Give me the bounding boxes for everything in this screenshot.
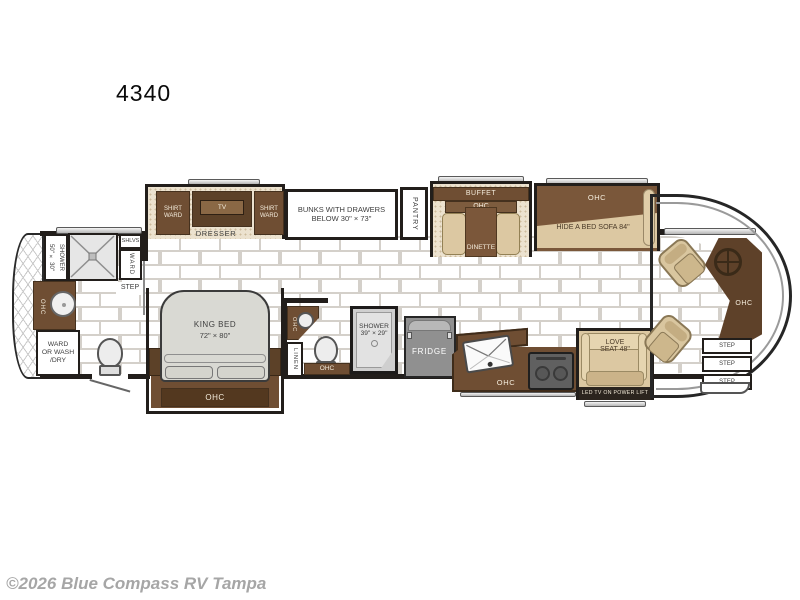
love-seat-slide: LOVE SEAT 48" LED TV ON POWER LIFT [576,328,654,400]
love-seat-line2: SEAT 48" [600,346,630,353]
king-bed-slide: KING BED 72" × 80" OHC [146,288,284,414]
mid-shower-size: 39" × 29" [361,330,388,337]
mid-shower: SHOWER 39" × 29" [350,306,398,374]
fridge-hinge-left [407,332,412,339]
tv-screen: TV [200,200,244,215]
cooktop-icon [528,352,574,390]
step-1-label: STEP [719,343,735,350]
step-1: STEP [702,338,752,354]
ward-wash-line3: /DRY [50,357,66,365]
mid-shower-label: SHOWER [359,323,389,330]
linen-cabinet: LINEN [286,342,303,377]
tv-cabinet: TV [192,191,252,227]
pocket-door-line [143,261,145,315]
entry-steps: STEP STEP STEP [702,338,748,384]
ward-label: WARD [127,253,134,275]
fridge: FRIDGE [404,316,456,378]
front-ohc-label: OHC [726,298,762,310]
fridge-label: FRIDGE [406,346,453,358]
pantry-label: PANTRY [410,197,418,231]
king-bed-label: KING BED [194,320,236,329]
wardrobe-box: WARD [119,249,142,280]
shower-drain-icon [371,340,378,347]
sofa-slide: OHC HIDE A BED SOFA 84" [534,183,660,251]
dinette-slide: BUFFET OHC DINETTE [430,181,532,257]
rear-vanity-ohc-label: OHC [35,286,45,328]
dresser-label: DRESSER [166,229,266,239]
bath-step-label: STEP [116,282,144,295]
wall-segment [282,298,328,303]
pantry-box: PANTRY [400,187,428,240]
hide-a-bed-sofa-label: HIDE A BED SOFA 84" [539,222,647,232]
rear-bath-shower-label: 50" × 30" SHOWER [44,234,68,281]
wall-segment [142,233,148,261]
floor-plan: SHIRT WARD TV SHIRT WARD DRESSER BUNKS W… [0,0,800,600]
door-swing-line [90,379,131,392]
rear-vanity-sink-icon [50,291,76,317]
mattress-seam [164,354,266,363]
linen-label: LINEN [291,348,298,370]
rear-vanity: OHC [33,281,76,330]
bunks-label-line2: BELOW 30" × 73" [312,215,372,224]
ward-or-washdry-box: WARD OR WASH /DRY [36,330,80,376]
watermark: ©2026 Blue Compass RV Tampa [6,574,266,594]
entry-platform [700,382,750,394]
rear-toilet-icon [96,338,124,378]
step-2-label: STEP [719,361,735,368]
ward-wash-line2: OR WASH [42,349,74,357]
bed-cushion-right [217,366,265,379]
love-seat-line1: LOVE [606,339,625,346]
step-2: STEP [702,356,752,372]
mid-shower-pan: SHOWER 39" × 29" [356,312,392,368]
ward-wash-line1: WARD [48,341,69,349]
king-bed-ohc: OHC [161,388,269,407]
love-seat-cushion [586,371,644,386]
dinette-bench-right [496,213,520,255]
bed-cushion-left [165,366,213,379]
buffet-cabinet: BUFFET [433,187,529,201]
rear-shower-pan [68,233,118,281]
steering-wheel-icon [714,248,742,276]
shlvs-label: SHLVS [122,238,140,244]
window-strip [460,392,576,397]
bunks-box: BUNKS WITH DRAWERS BELOW 30" × 73" [285,189,398,240]
shower-pan-x-icon [70,235,115,278]
rear-shower-size: 50" × 30" [48,244,54,271]
dinette-bench-left [442,213,466,255]
shelves-box: SHLVS [119,234,142,249]
rear-shower-word: SHOWER [58,244,64,271]
dinette-table: DINETTE [465,207,497,257]
dinette-label: DINETTE [467,244,495,251]
king-bed-size: 72" × 80" [200,331,231,340]
kitchen-ohc-label: OHC [484,377,528,389]
sofa-ohc-label: OHC [567,193,627,203]
love-seat-label: LOVE SEAT 48" [589,339,641,363]
mid-bath-ohc: OHC [304,363,350,375]
window-strip [584,401,646,407]
fridge-hinge-right [447,332,452,339]
bedroom-slide: SHIRT WARD TV SHIRT WARD DRESSER [145,184,285,239]
mid-vanity-ohc-label: OHC [288,310,297,340]
fridge-top-band [408,320,451,331]
led-tv-lift-label: LED TV ON POWER LIFT [579,387,651,400]
kitchen-sink-icon [462,334,514,373]
